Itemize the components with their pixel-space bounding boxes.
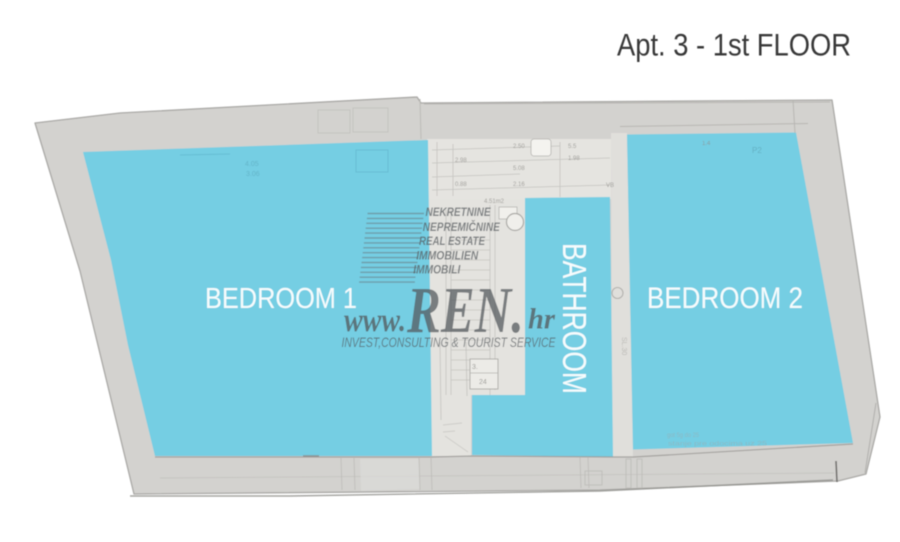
svg-text:BEDROOM 2: BEDROOM 2 <box>647 282 803 315</box>
svg-text:VB: VB <box>606 183 614 189</box>
svg-text:BEDROOM 1: BEDROOM 1 <box>205 283 357 315</box>
svg-text:BATHROOM: BATHROOM <box>556 243 593 394</box>
svg-text:NEPREMIČNINE: NEPREMIČNINE <box>423 221 501 234</box>
svg-text:4.51m2: 4.51m2 <box>484 199 505 205</box>
svg-text:0.88: 0.88 <box>455 182 467 188</box>
svg-text:IMMOBILIEN: IMMOBILIEN <box>416 249 478 262</box>
svg-text:2.16: 2.16 <box>513 182 525 188</box>
svg-text:4.05: 4.05 <box>245 161 259 168</box>
svg-text:2.98: 2.98 <box>455 158 467 164</box>
svg-text:REAL ESTATE: REAL ESTATE <box>419 235 486 248</box>
svg-text:24: 24 <box>479 379 487 386</box>
svg-text:3.: 3. <box>472 364 478 371</box>
svg-text:5.5: 5.5 <box>568 144 577 150</box>
svg-text:Apt. 3 - 1st FLOOR: Apt. 3 - 1st FLOOR <box>617 27 851 63</box>
svg-text:3.06: 3.06 <box>246 171 260 178</box>
svg-text:hr: hr <box>528 303 555 336</box>
svg-text:INVEST,CONSULTING & TOURIST SE: INVEST,CONSULTING & TOURIST SERVICE <box>342 334 556 350</box>
svg-text:2.50: 2.50 <box>513 144 525 150</box>
svg-text:5.08: 5.08 <box>513 166 525 172</box>
svg-text:SL.30: SL.30 <box>620 337 627 355</box>
svg-text:P2: P2 <box>752 146 762 155</box>
svg-text:stanje pre odocima uz 25: stanje pre odocima uz 25 <box>668 441 768 448</box>
svg-text:1.4: 1.4 <box>702 141 711 147</box>
svg-text:1.98: 1.98 <box>568 156 580 162</box>
svg-text:NEKRETNINE: NEKRETNINE <box>426 206 492 219</box>
svg-text:got 5g do 25: got 5g do 25 <box>667 432 699 439</box>
